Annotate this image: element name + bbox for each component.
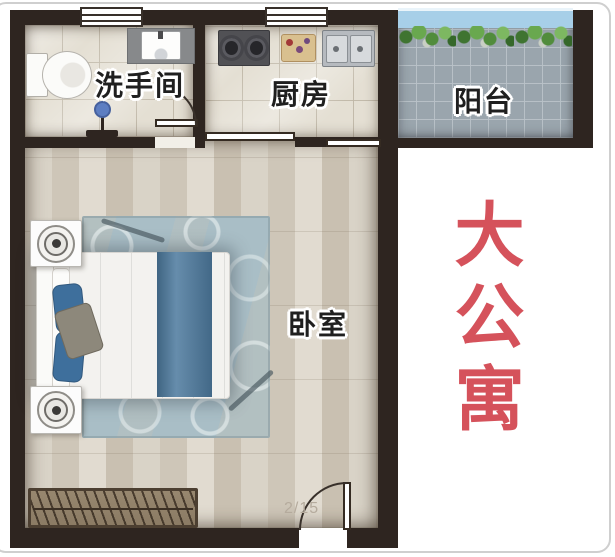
photo-border bbox=[0, 2, 611, 553]
floorplan-page: 洗手间 厨房 阳台 卧室 2/15 大公寓 bbox=[0, 0, 615, 557]
